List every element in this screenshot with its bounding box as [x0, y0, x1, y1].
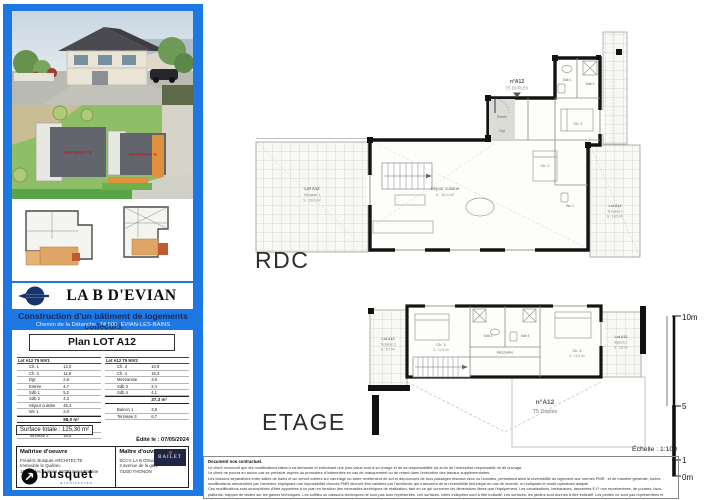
site-building-a-label: BATIMENT A [129, 152, 157, 157]
svg-text:Sdb 3: Sdb 3 [484, 334, 493, 338]
svg-text:n°A12: n°A12 [510, 79, 524, 85]
developer-logo-icon [16, 284, 50, 308]
svg-text:Entrée: Entrée [497, 115, 507, 119]
svg-text:T5 Duplex: T5 Duplex [533, 409, 558, 415]
terrasse3-area: S : 6,7 m² [381, 348, 396, 352]
title-band: LA B D'EVIAN [12, 283, 193, 309]
terrasse2-area: S : 18,5 m² [607, 215, 624, 219]
svg-text:Sdb 1: Sdb 1 [563, 78, 572, 82]
rdc-unit-label: n°A12 T5 DUPLEX [506, 79, 529, 98]
legal-lines: Le client reconnaît que les modification… [208, 465, 674, 499]
plan-sheet: BATIMENT B BATIMENT A [0, 0, 707, 500]
balcon1-name: Balcon 1 [615, 341, 628, 345]
legal-title: Document non contractuel. [208, 459, 262, 464]
house-render-illustration [12, 11, 193, 105]
scale-0m-label: 0m [682, 473, 693, 482]
plan-lot-title: Plan LOT A12 [29, 334, 175, 351]
site-plan-image: BATIMENT B BATIMENT A [12, 105, 193, 199]
svg-text:n°A12: n°A12 [536, 398, 555, 406]
etage-balcon1: Lot A12 Balcon 1 S : 3,8 m² [601, 306, 646, 377]
svg-text:Ch. 3: Ch. 3 [436, 343, 445, 347]
svg-text:T5 DUPLEX: T5 DUPLEX [506, 86, 529, 91]
moe-section: Maîtrise d'oeuvre Frédéric Busquet ARCHI… [17, 447, 116, 487]
cartouche-panel: Plan LOT A12 Lot A12 T5 NIV1Ch. 112,0Ch.… [12, 330, 193, 490]
scale-1-label: 1 [682, 456, 687, 465]
terrasse3-name: Terrasse 3 [380, 343, 396, 347]
edited-date: Édité le : 07/05/2024 [136, 437, 189, 443]
terrasse2-label: Lot A12 [608, 204, 621, 208]
svg-text:Ch. 2: Ch. 2 [540, 164, 549, 168]
moa-section: Maître d'ouvrage SCCV LA B D'Evian 2 ave… [116, 447, 188, 487]
moe-title: Maîtrise d'oeuvre [20, 449, 112, 457]
svg-text:Sdb 2: Sdb 2 [586, 82, 595, 86]
svg-text:Dgt: Dgt [499, 129, 504, 133]
terrasse3-label: Lot A12 [381, 337, 394, 341]
scale-10m-label: 10m [682, 313, 698, 322]
svg-text:Sdb 4: Sdb 4 [521, 334, 530, 338]
firm-box: Maîtrise d'oeuvre Frédéric Busquet ARCHI… [16, 446, 189, 488]
terrasse1-name: Terrasse 1 [304, 193, 321, 197]
legal-line: Ces modifications sont susceptibles d'êt… [208, 486, 674, 499]
bailet-logo: BAILET [154, 449, 186, 466]
rdc-label: RDC [255, 247, 309, 274]
balcon1-area: S : 3,8 m² [614, 346, 629, 350]
plan-thumbnails-illustration [12, 199, 193, 281]
svg-text:Séjour cuisine: Séjour cuisine [431, 186, 460, 191]
etage-floor-plan: Lot A12 Terrasse 3 S : 6,7 m² Lot A12 Ba… [355, 292, 650, 477]
bailet-wordmark: BAILET [154, 455, 186, 462]
rdc-floor-plan: Lot A12 Terrasse 1 S : 29,0 m² Lot A12 T… [245, 25, 645, 265]
project-subtitle: Construction d'un bâtiment de logements … [3, 311, 203, 331]
site-plan-illustration: BATIMENT B BATIMENT A [12, 105, 193, 199]
rdc-terrasse1: Lot A12 Terrasse 1 S : 29,0 m² [256, 139, 368, 253]
terrasse1-label: Lot A12 [304, 186, 320, 191]
terrasse2-name: Terrasse 2 [607, 210, 623, 214]
balcon1-label: Lot A12 [614, 335, 627, 339]
scale-text: Échelle : 1:100 [632, 446, 677, 453]
svg-text:S : 45,4 m²: S : 45,4 m² [436, 193, 455, 197]
etage-stairs [413, 357, 470, 377]
legal-line: Les cloisons séparatives entre salles de… [208, 476, 674, 487]
project-address: Chemin de la Détanche, 74 500, EVIAN-LES… [3, 322, 203, 328]
svg-text:Ch. 4: Ch. 4 [572, 349, 581, 353]
rdc-hall [489, 99, 515, 139]
plan-thumbnails [12, 199, 193, 281]
terrasse1-area: S : 29,0 m² [303, 199, 321, 203]
svg-text:Ch. 1: Ch. 1 [573, 122, 582, 126]
etage-unit-label: n°A12 T5 Duplex [533, 398, 558, 415]
bailet-red-mark-icon [169, 451, 172, 454]
etage-terrasse3: Lot A12 Terrasse 3 S : 6,7 m² [368, 308, 410, 391]
svg-text:Wc 1: Wc 1 [566, 204, 574, 208]
etage-label: ETAGE [262, 409, 346, 436]
svg-text:S : 10,9 m²: S : 10,9 m² [433, 348, 449, 352]
moa-line: 74200 THONON [119, 469, 185, 475]
project-title: LA B D'EVIAN [50, 287, 193, 305]
table-row: Lot A12 T5 NIV1 [17, 357, 101, 364]
busquet-wordmark-sub: architectes [41, 481, 93, 485]
table-row: 37,3 m² [105, 396, 189, 403]
svg-text:S : 15,3 m²: S : 15,3 m² [569, 354, 585, 358]
surface-total: Surface totale : 125,30 m² [16, 425, 93, 435]
site-building-b-label: BATIMENT B [64, 150, 93, 155]
busquet-wordmark: busquet [41, 468, 93, 480]
render-image [12, 11, 193, 105]
table-row: 88,0 m² [17, 416, 101, 423]
busquet-arrow-icon [21, 468, 38, 485]
legal-notice: Document non contractuel. Le client reco… [203, 456, 679, 499]
architect-logo: busquet architectes [21, 468, 93, 485]
scale-5-label: 5 [682, 402, 687, 411]
svg-text:Mezzanine: Mezzanine [497, 351, 514, 355]
table-row: Terrasse 36,7 [105, 414, 189, 420]
lot-table-niv2: Lot A12 T5 NIV2Ch. 310,9Ch. 415,3Mezzani… [105, 357, 189, 420]
table-row: Lot A12 T5 NIV2 [105, 357, 189, 364]
rdc-stairs [382, 163, 432, 189]
sidebar: BATIMENT B BATIMENT A [3, 4, 203, 496]
